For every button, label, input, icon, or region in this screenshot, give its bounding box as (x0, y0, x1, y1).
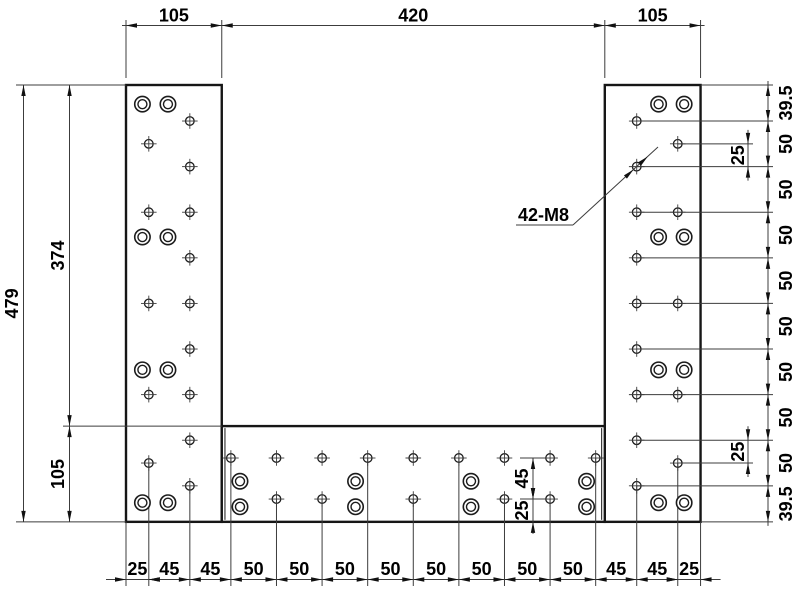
dim-label: 374 (48, 241, 68, 271)
counterbore-hole-outer (676, 495, 691, 510)
dim-label: 50 (426, 559, 446, 579)
dim-label: 25 (728, 145, 748, 165)
counterbore-hole-outer (160, 495, 175, 510)
counterbore-hole-outer (463, 474, 478, 489)
counterbore-hole-outer (160, 362, 175, 377)
dim-label: 25 (679, 559, 699, 579)
counterbore-hole-outer (232, 499, 247, 514)
counterbore-hole-outer (676, 229, 691, 244)
dim-label: 45 (647, 559, 667, 579)
counterbore-hole-outer (651, 495, 666, 510)
counterbore-hole-outer (348, 499, 363, 514)
dim-label: 50 (289, 559, 309, 579)
dim-label: 45 (606, 559, 626, 579)
counterbore-hole-outer (676, 362, 691, 377)
dim-label: 45 (512, 469, 532, 489)
counterbore-hole-outer (160, 229, 175, 244)
dim-label: 50 (244, 559, 264, 579)
dim-label: 39.5 (776, 486, 796, 521)
dim-label: 42-M8 (518, 205, 569, 225)
counterbore-hole-outer (676, 96, 691, 111)
dim-label: 45 (159, 559, 179, 579)
dim-label: 39.5 (776, 85, 796, 120)
dim-label: 105 (638, 6, 668, 26)
dim-label: 45 (200, 559, 220, 579)
dim-label: 50 (776, 407, 796, 427)
dim-label: 50 (776, 316, 796, 336)
dim-label: 50 (776, 362, 796, 382)
dim-label: 105 (48, 459, 68, 489)
counterbore-hole-outer (232, 474, 247, 489)
counterbore-hole-outer (463, 499, 478, 514)
counterbore-hole-outer (160, 96, 175, 111)
counterbore-hole-outer (651, 229, 666, 244)
dim-label: 50 (472, 559, 492, 579)
dim-label: 50 (776, 179, 796, 199)
dim-label: 479 (2, 288, 22, 318)
dim-label: 25 (728, 442, 748, 462)
counterbore-hole-outer (135, 362, 150, 377)
left-plate (126, 85, 222, 522)
dim-label: 105 (159, 6, 189, 26)
dim-label: 25 (127, 559, 147, 579)
dim-label: 50 (335, 559, 355, 579)
counterbore-hole-outer (579, 474, 594, 489)
technical-drawing: 105420105254545505050505050505045452539.… (0, 0, 800, 591)
counterbore-hole-outer (135, 495, 150, 510)
dim-label: 50 (517, 559, 537, 579)
dim-label: 25 (512, 500, 532, 520)
dim-label: 50 (380, 559, 400, 579)
dim-label: 50 (776, 271, 796, 291)
counterbore-hole-outer (135, 96, 150, 111)
counterbore-hole-outer (579, 499, 594, 514)
drawing-canvas: 105420105254545505050505050505045452539.… (0, 0, 800, 591)
dim-label: 50 (776, 453, 796, 473)
counterbore-hole-outer (651, 96, 666, 111)
dim-label: 50 (776, 225, 796, 245)
counterbore-hole-outer (135, 229, 150, 244)
counterbore-hole-outer (651, 362, 666, 377)
counterbore-hole-outer (348, 474, 363, 489)
dim-label: 420 (398, 6, 428, 26)
dim-label: 50 (563, 559, 583, 579)
dim-label: 50 (776, 134, 796, 154)
